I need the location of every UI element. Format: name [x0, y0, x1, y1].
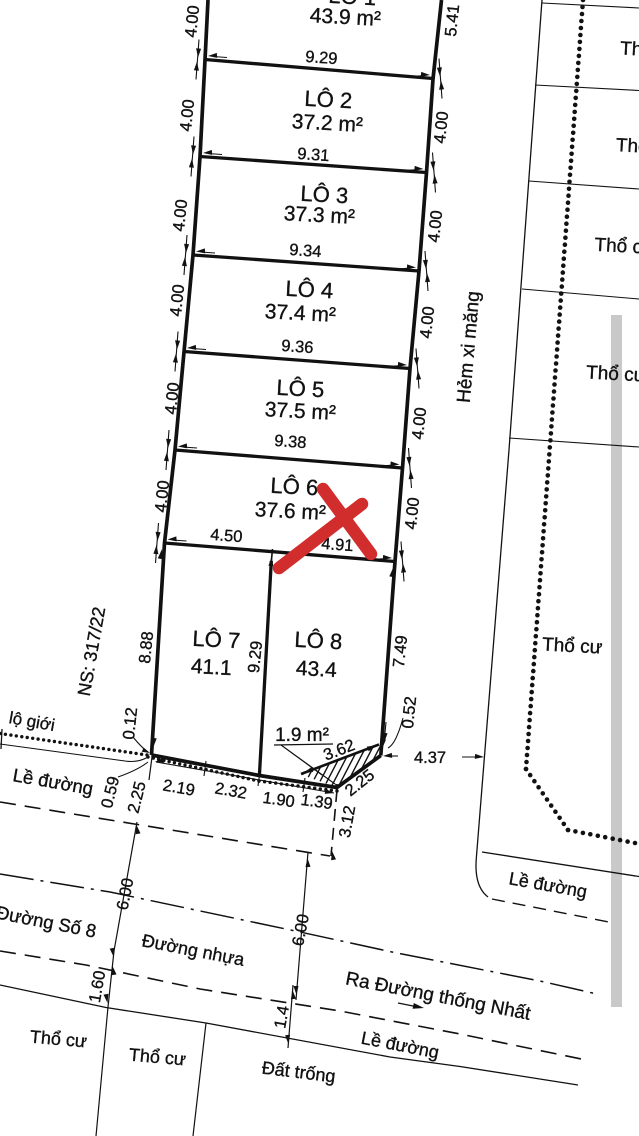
svg-text:4.00: 4.00	[182, 5, 203, 39]
svg-text:Thổ c: Thổ c	[594, 235, 639, 258]
svg-text:4.50: 4.50	[210, 526, 243, 546]
svg-text:1.9 m²: 1.9 m²	[275, 725, 329, 746]
svg-text:LÔ 2: LÔ 2	[304, 86, 353, 113]
svg-text:0.52: 0.52	[399, 696, 420, 730]
svg-text:4.00: 4.00	[162, 382, 183, 416]
svg-text:43.4: 43.4	[295, 657, 337, 682]
svg-text:37.2 m²: 37.2 m²	[291, 110, 363, 137]
svg-text:4.00: 4.00	[417, 306, 438, 340]
svg-text:0.12: 0.12	[120, 707, 141, 741]
svg-text:41.1: 41.1	[190, 655, 232, 680]
svg-text:4.00: 4.00	[431, 111, 452, 145]
svg-text:4.37: 4.37	[414, 749, 446, 767]
svg-text:37.3 m²: 37.3 m²	[283, 202, 355, 229]
svg-text:9.29: 9.29	[305, 48, 338, 68]
svg-text:9.34: 9.34	[289, 241, 322, 261]
svg-text:4.00: 4.00	[425, 210, 446, 244]
svg-text:Th: Th	[620, 38, 639, 60]
svg-text:Thổ cư: Thổ cư	[542, 634, 604, 658]
svg-text:LÔ 7: LÔ 7	[192, 626, 241, 653]
svg-text:9.31: 9.31	[297, 145, 330, 165]
svg-text:4.00: 4.00	[170, 199, 191, 233]
svg-text:37.6 m²: 37.6 m²	[254, 498, 326, 525]
svg-text:4.00: 4.00	[177, 99, 198, 133]
svg-text:8.88: 8.88	[136, 631, 157, 665]
svg-text:LÔ 8: LÔ 8	[294, 627, 343, 654]
svg-text:43.9 m²: 43.9 m²	[309, 4, 381, 31]
svg-text:4.00: 4.00	[152, 480, 173, 514]
svg-text:Thổ cư: Thổ cư	[586, 362, 639, 386]
svg-text:9.36: 9.36	[281, 337, 314, 357]
svg-text:7.49: 7.49	[390, 635, 411, 669]
svg-text:5.41: 5.41	[442, 4, 463, 38]
svg-text:4.00: 4.00	[409, 407, 430, 441]
svg-text:37.4 m²: 37.4 m²	[264, 300, 336, 327]
svg-text:Thổ: Thổ	[615, 135, 639, 158]
svg-text:4.00: 4.00	[167, 284, 188, 318]
svg-text:37.5 m²: 37.5 m²	[264, 398, 336, 425]
svg-text:4.00: 4.00	[402, 497, 423, 531]
svg-text:9.29: 9.29	[245, 640, 266, 674]
svg-text:9.38: 9.38	[274, 432, 307, 452]
svg-text:LÔ 4: LÔ 4	[285, 276, 334, 303]
svg-text:LÔ 6: LÔ 6	[270, 473, 319, 500]
